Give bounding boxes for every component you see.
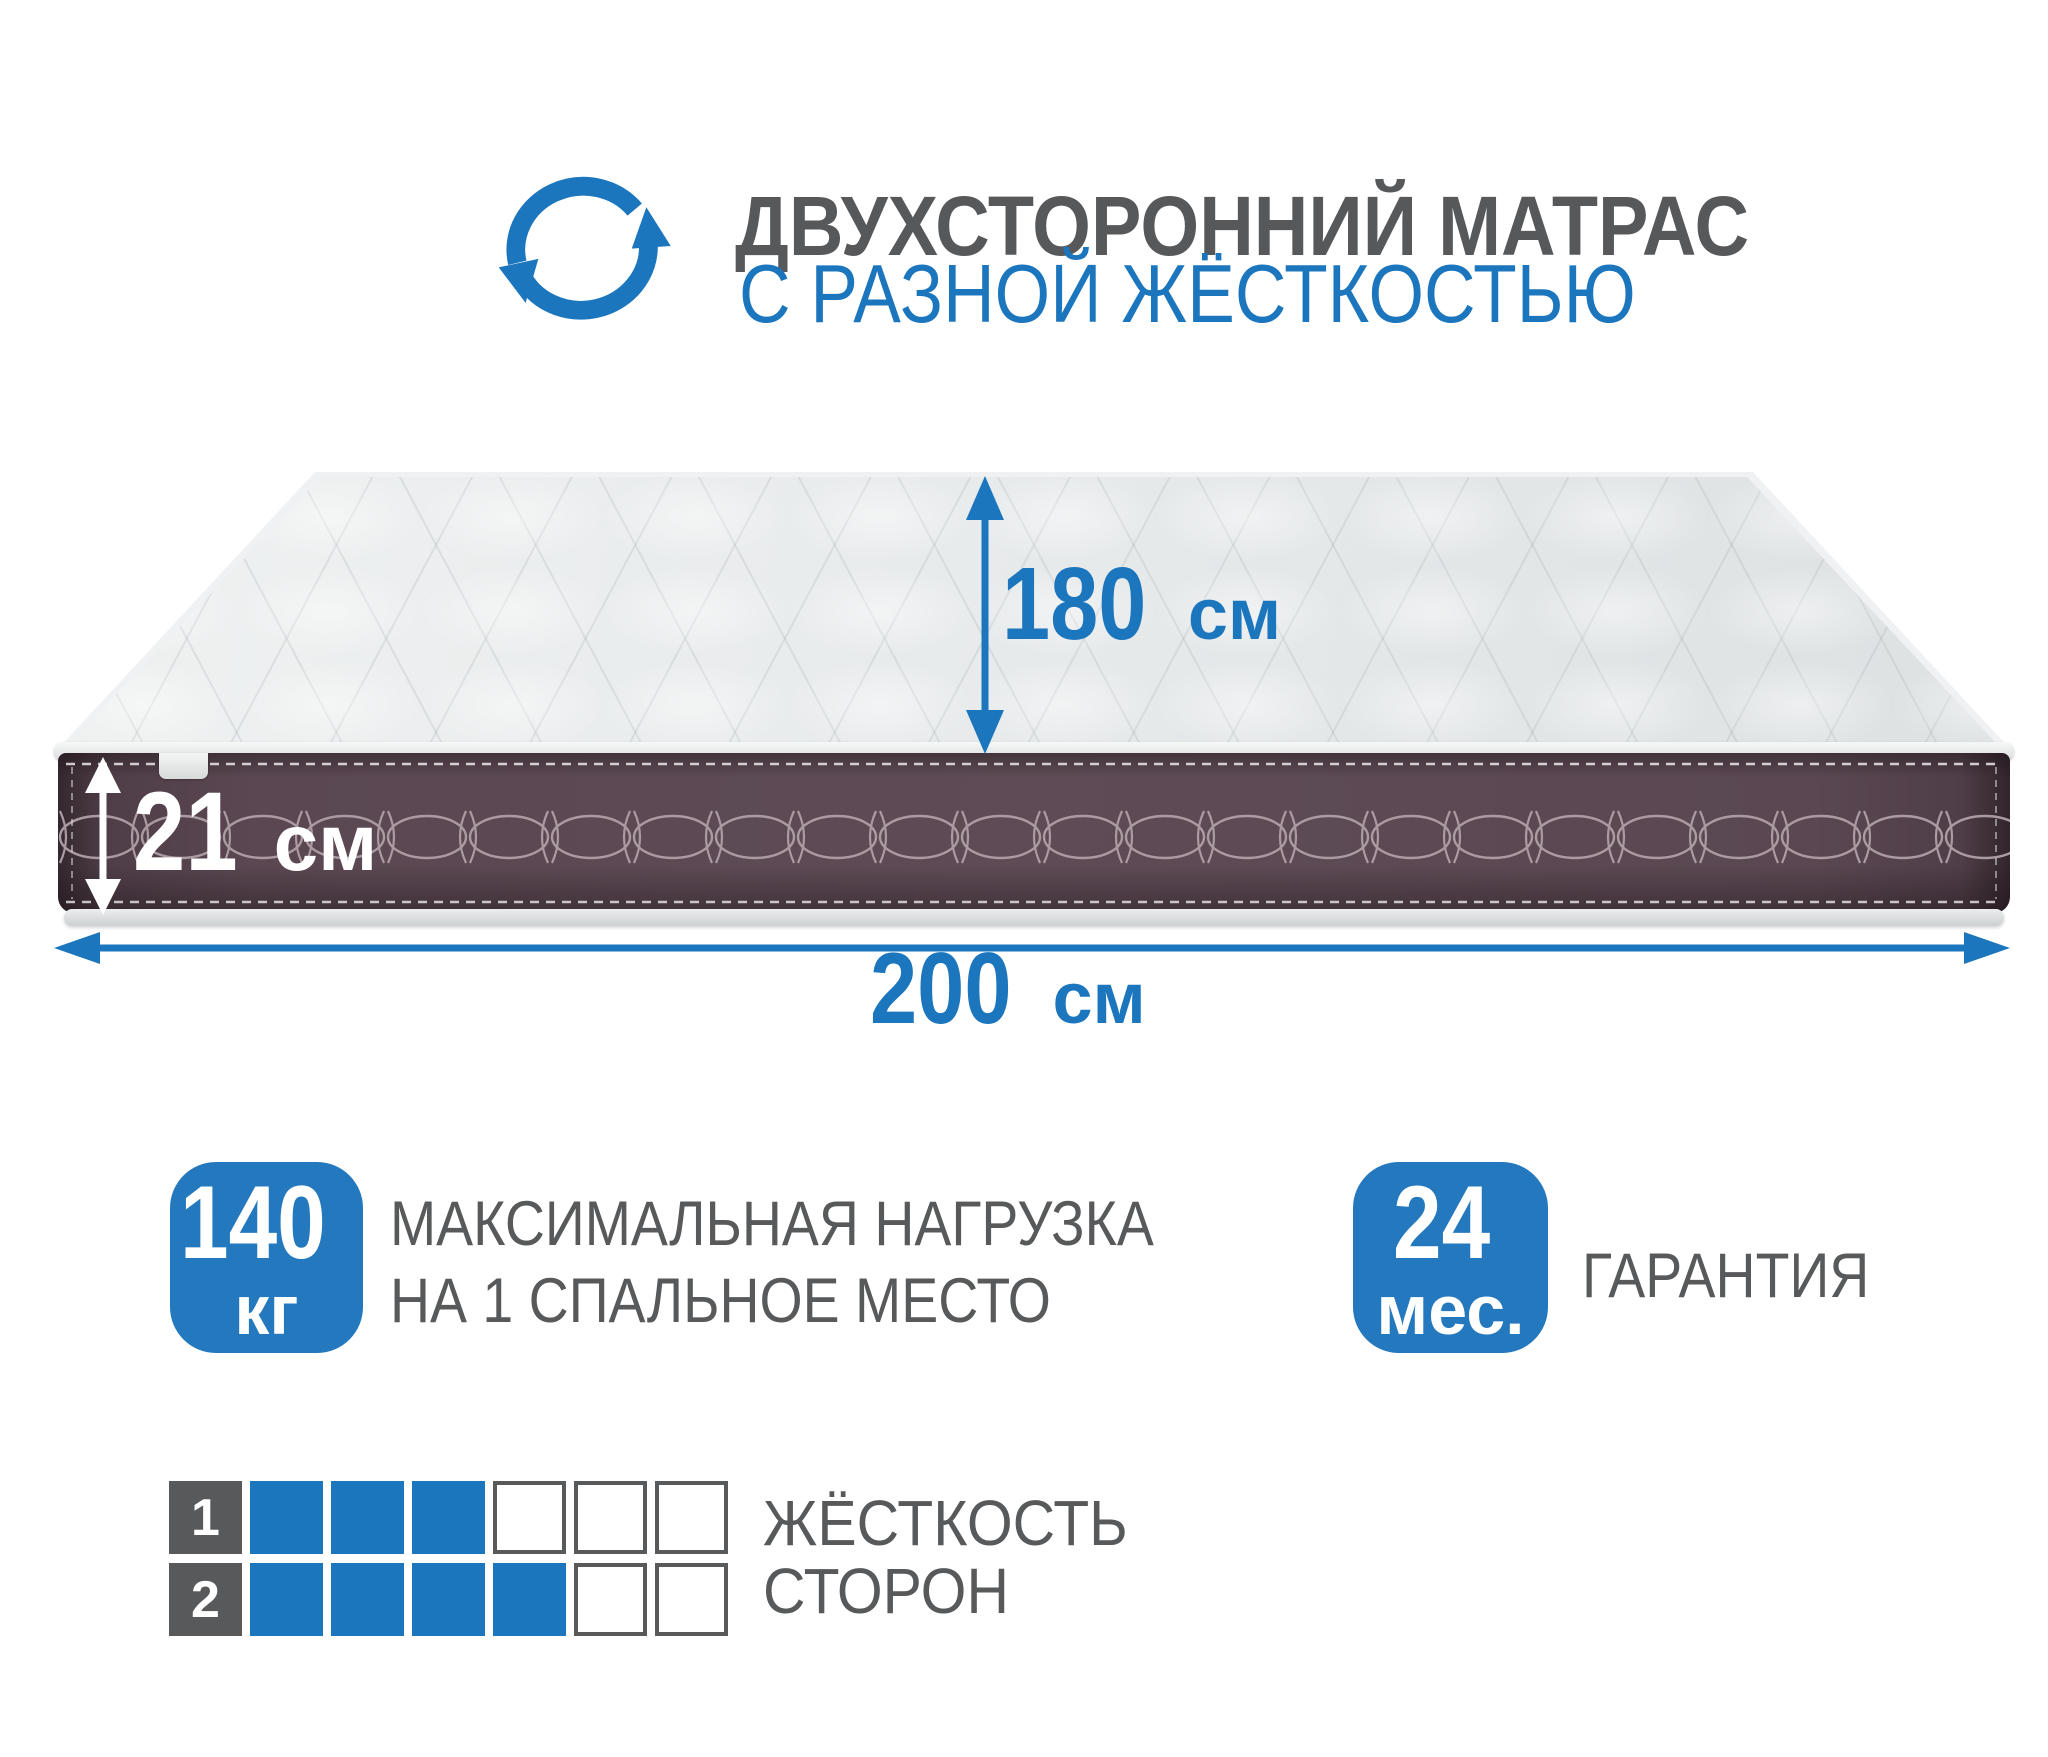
max-load-badge: 140 кг (170, 1162, 363, 1353)
firmness-cell-empty (493, 1481, 566, 1554)
warranty-label: ГАРАНТИЯ (1582, 1245, 1909, 1308)
mattress-infographic: ДВУХСТОРОННИЙ МАТРАС С РАЗНОЙ ЖЁСТКОСТЬЮ (0, 0, 2048, 1757)
firmness-cell-filled (250, 1481, 323, 1554)
firmness-row-side-1: 1 (169, 1481, 728, 1554)
firmness-cell-empty (655, 1481, 728, 1554)
firmness-row-side-2: 2 (169, 1563, 728, 1636)
warranty-badge: 24 мес. (1353, 1162, 1548, 1353)
firmness-side-number: 1 (169, 1481, 242, 1554)
firmness-cell-empty (655, 1563, 728, 1636)
width-dimension-label: 200см (870, 939, 1146, 1040)
firmness-cell-filled (412, 1481, 485, 1554)
max-load-label: МАКСИМАЛЬНАЯ НАГРУЗКА НА 1 СПАЛЬНОЕ МЕСТ… (390, 1186, 1258, 1340)
firmness-cell-empty (574, 1481, 647, 1554)
firmness-cell-filled (412, 1563, 485, 1636)
firmness-cell-filled (331, 1563, 404, 1636)
height-dimension-label: 21см (133, 776, 377, 888)
page-subtitle: С РАЗНОЙ ЖЁСТКОСТЬЮ (739, 252, 1782, 335)
firmness-cell-empty (574, 1563, 647, 1636)
mattress-bottom-edge (64, 909, 2004, 926)
firmness-cell-filled (250, 1563, 323, 1636)
firmness-side-number: 2 (169, 1563, 242, 1636)
length-dimension-label: 180см (1002, 552, 1281, 655)
height-dimension-arrow (76, 757, 130, 915)
firmness-label: ЖЁСТКОСТЬ СТОРОН (763, 1489, 1160, 1625)
rotate-arrows-icon (485, 158, 688, 346)
firmness-cell-filled (331, 1481, 404, 1554)
firmness-cell-filled (493, 1563, 566, 1636)
